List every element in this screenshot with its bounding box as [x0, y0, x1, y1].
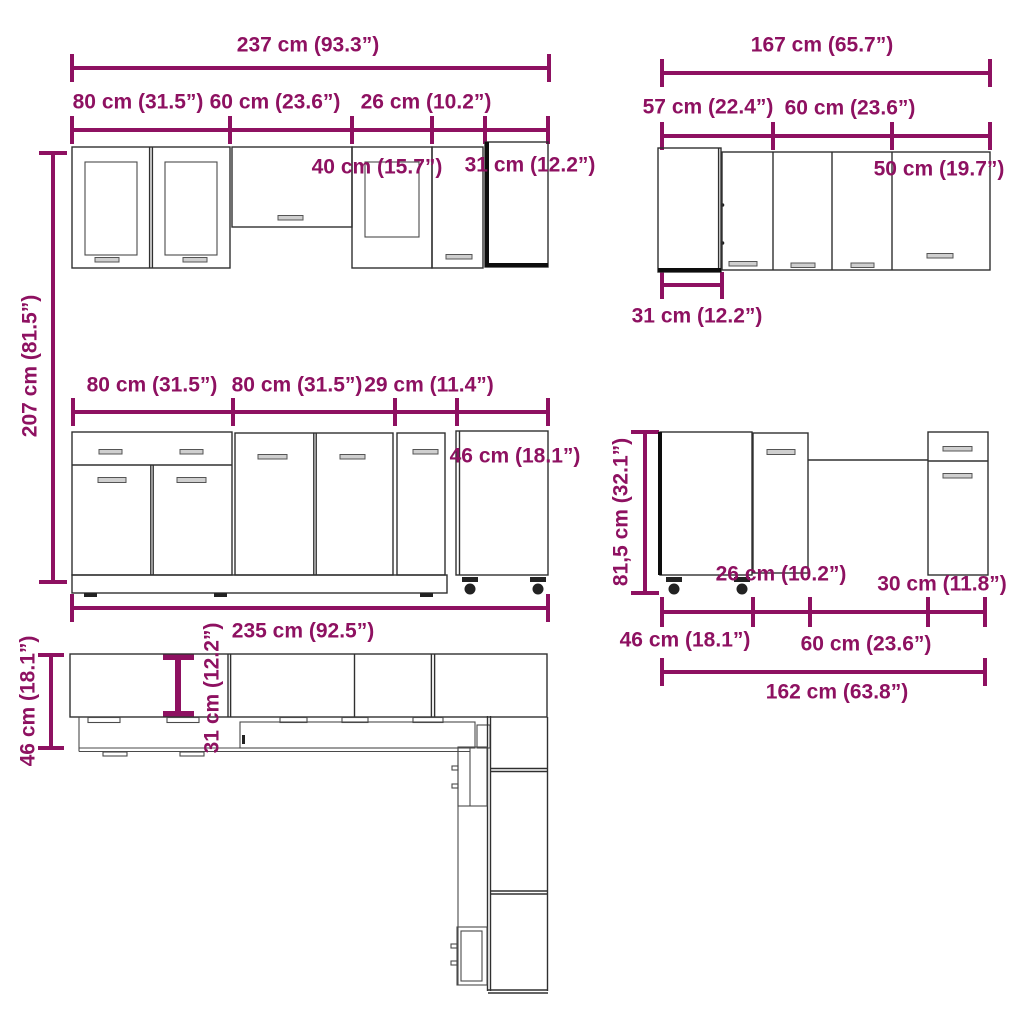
handle [340, 455, 365, 460]
plan-wall-band [70, 654, 547, 717]
base-corner-cabinet-side [660, 432, 752, 575]
dim-label-31-corner: 31 cm (12.2”) [632, 306, 763, 327]
handle [851, 263, 874, 268]
dim-label-80: 80 cm (31.5”) [73, 92, 204, 113]
handle [95, 258, 119, 263]
wall-corner-cabinet-side [658, 148, 721, 272]
dim-label-60c: 60 cm (23.6”) [801, 634, 932, 655]
plan-base-box [458, 747, 487, 806]
handle [183, 258, 207, 263]
wall-cabinet-80-double [72, 147, 230, 268]
caster [666, 577, 682, 595]
plan-door-edge [167, 718, 199, 723]
handle [446, 255, 472, 260]
handle [927, 254, 953, 259]
dim-label-total-167: 167 cm (65.7”) [751, 35, 893, 56]
caster [530, 577, 546, 595]
handle [99, 450, 122, 455]
handle [943, 447, 972, 452]
dim-label-total-235: 235 cm (92.5”) [232, 621, 374, 642]
dim-label-total-162: 162 cm (63.8”) [766, 682, 908, 703]
handle [180, 450, 203, 455]
dim-label-26: 26 cm (10.2”) [361, 92, 492, 113]
handle [177, 478, 206, 483]
plan-view-dimensions [38, 655, 194, 748]
dim-label-46-base: 46 cm (18.1”) [450, 446, 581, 467]
caster [462, 577, 478, 595]
handle [258, 455, 287, 460]
dim-label-height-815: 81,5 cm (32.1”) [611, 438, 632, 586]
handle [729, 262, 757, 267]
dim-label-total-237: 237 cm (93.3”) [237, 35, 379, 56]
handle [278, 216, 303, 221]
plan-open-drawer [240, 722, 475, 748]
handle [943, 474, 972, 479]
dim-label-46b: 46 cm (18.1”) [620, 630, 751, 651]
plan-door-edge [88, 718, 120, 723]
handle [413, 450, 438, 455]
plinth [72, 575, 447, 593]
plan-view-drawing [70, 654, 548, 993]
dim-label-80a: 80 cm (31.5”) [87, 375, 218, 396]
handle [767, 450, 795, 455]
handle [98, 478, 126, 483]
dim-label-depth-31: 31 cm (12.2”) [202, 623, 223, 754]
dim-label-40: 40 cm (15.7”) [312, 157, 443, 178]
dim-label-29: 29 cm (11.4”) [364, 375, 494, 396]
dim-label-31-wall: 31 cm (12.2”) [465, 155, 596, 176]
dim-label-57: 57 cm (22.4”) [643, 97, 774, 118]
handle [791, 263, 815, 268]
dim-label-60: 60 cm (23.6”) [210, 92, 341, 113]
dim-label-50: 50 cm (19.7”) [874, 159, 1005, 180]
base-cabinet-80-drawers [72, 432, 232, 575]
dim-label-80b: 80 cm (31.5”) [232, 375, 363, 396]
dim-label-60b: 60 cm (23.6”) [785, 98, 916, 119]
base-cabinet-30-drawers [928, 432, 988, 575]
dim-label-height-207: 207 cm (81.5”) [20, 295, 41, 437]
dim-label-depth-46: 46 cm (18.1”) [18, 636, 39, 767]
dim-label-30: 30 cm (11.8”) [877, 574, 1007, 595]
dimension-diagram: 237 cm (93.3”) 80 cm (31.5”) 60 cm (23.6… [0, 0, 1024, 1024]
dim-label-26b: 26 cm (10.2”) [716, 564, 847, 585]
